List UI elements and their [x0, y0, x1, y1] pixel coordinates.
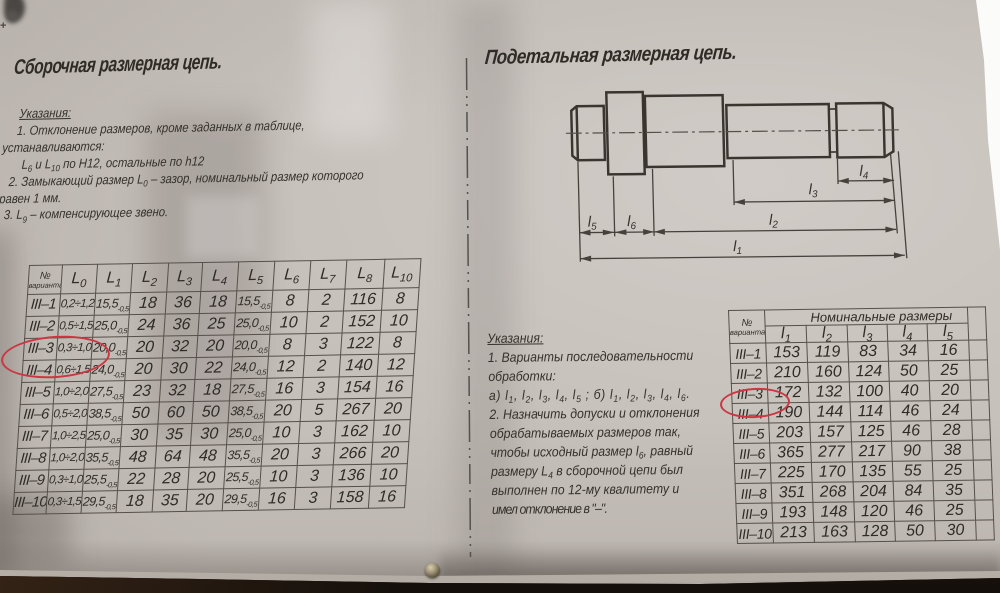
- svg-text:l3: l3: [808, 182, 818, 200]
- svg-text:l4: l4: [859, 164, 869, 182]
- svg-text:l1: l1: [732, 239, 741, 257]
- svg-text:l2: l2: [768, 213, 778, 231]
- svg-text:l5: l5: [587, 214, 597, 232]
- svg-text:l6: l6: [626, 214, 636, 232]
